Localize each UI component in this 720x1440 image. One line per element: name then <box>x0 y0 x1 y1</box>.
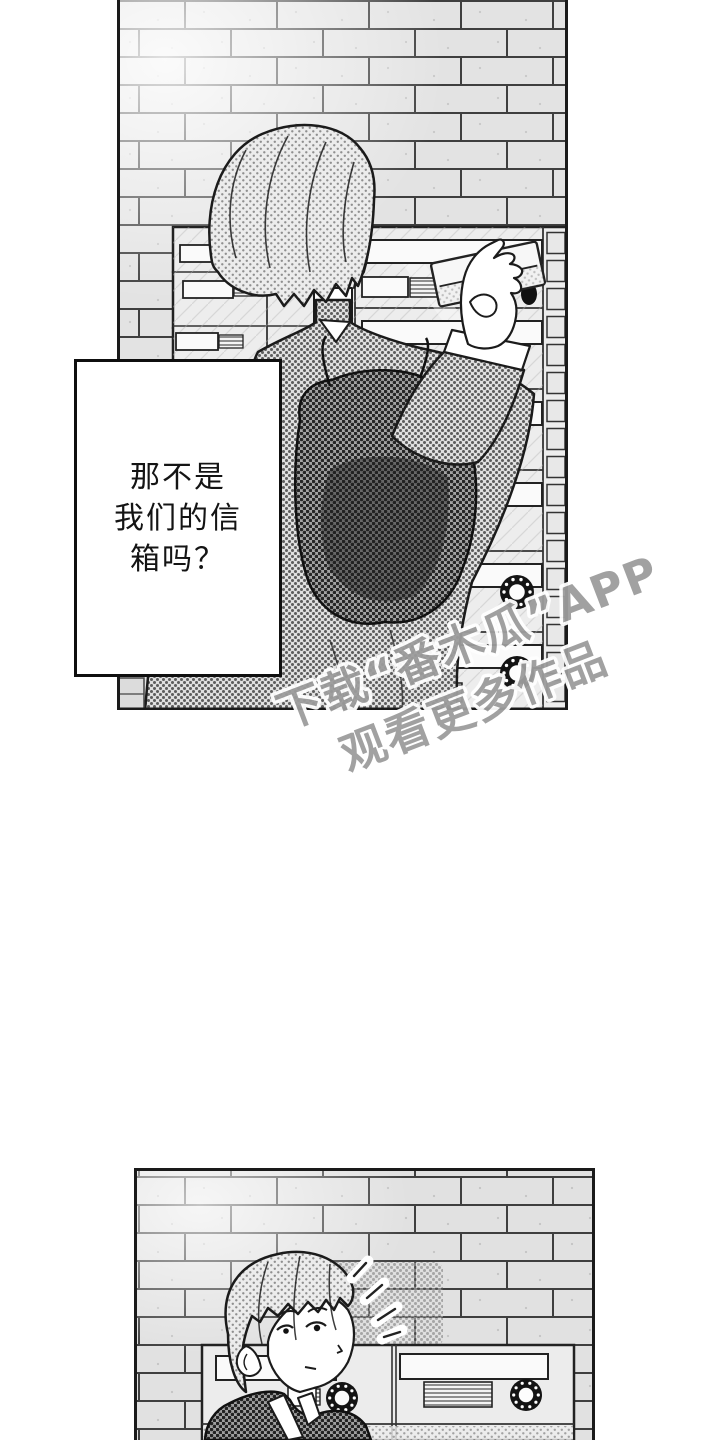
speech-line-3: 箱吗？ <box>130 539 226 580</box>
comic-page: 那不是 我们的信 箱吗？ 下载“番木瓜”APP 观看更多作品 <box>0 0 720 1440</box>
speech-bubble: 那不是 我们的信 箱吗？ <box>74 359 282 677</box>
mailbox-hinge-strip <box>546 231 567 707</box>
speech-line-2: 我们的信 <box>114 498 242 539</box>
pupil <box>283 1328 289 1334</box>
combination-dial <box>326 1382 358 1414</box>
combination-dial <box>500 575 534 609</box>
speech-line-1: 那不是 <box>130 457 226 498</box>
panel-2-artwork <box>134 1168 595 1440</box>
pupil <box>314 1325 320 1331</box>
combination-dial <box>510 1379 542 1411</box>
combination-dial <box>500 656 534 690</box>
